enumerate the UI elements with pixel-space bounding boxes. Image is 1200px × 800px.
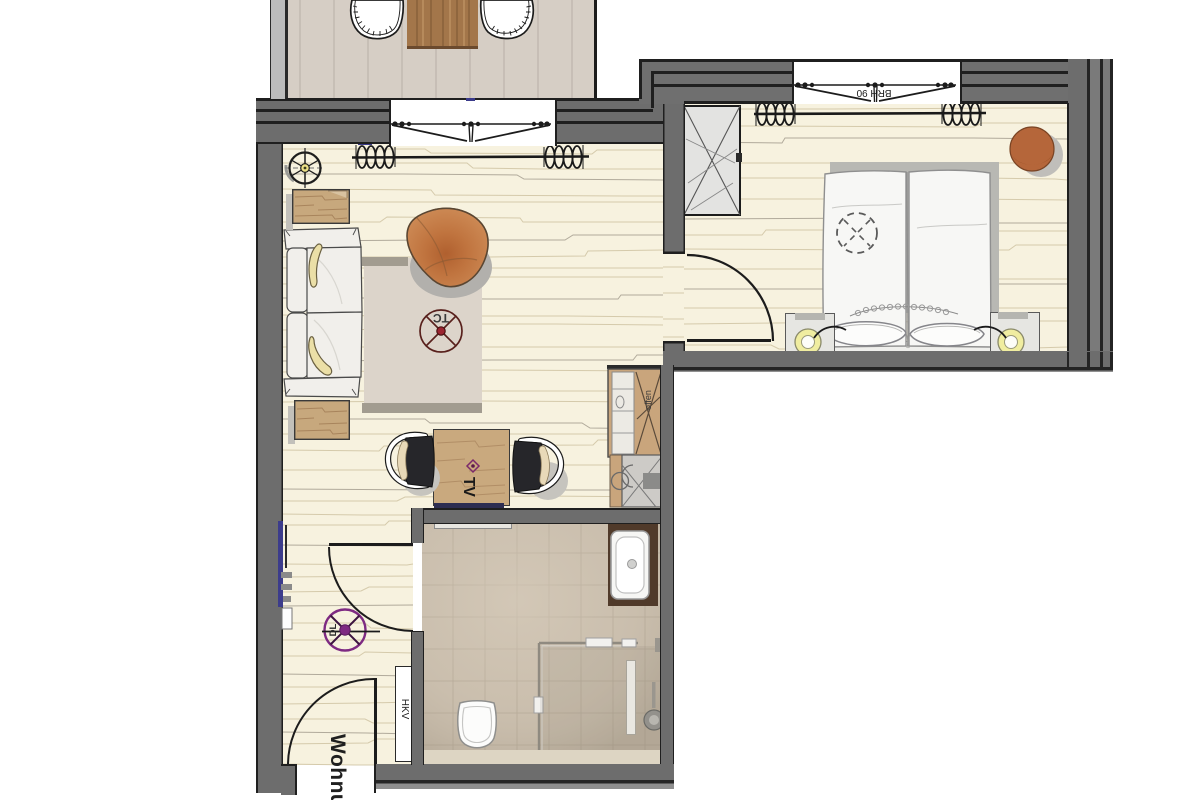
svg-text:offen: offen [643,390,653,410]
svg-text:TC: TC [433,311,449,325]
svg-text:DL: DL [328,623,339,636]
